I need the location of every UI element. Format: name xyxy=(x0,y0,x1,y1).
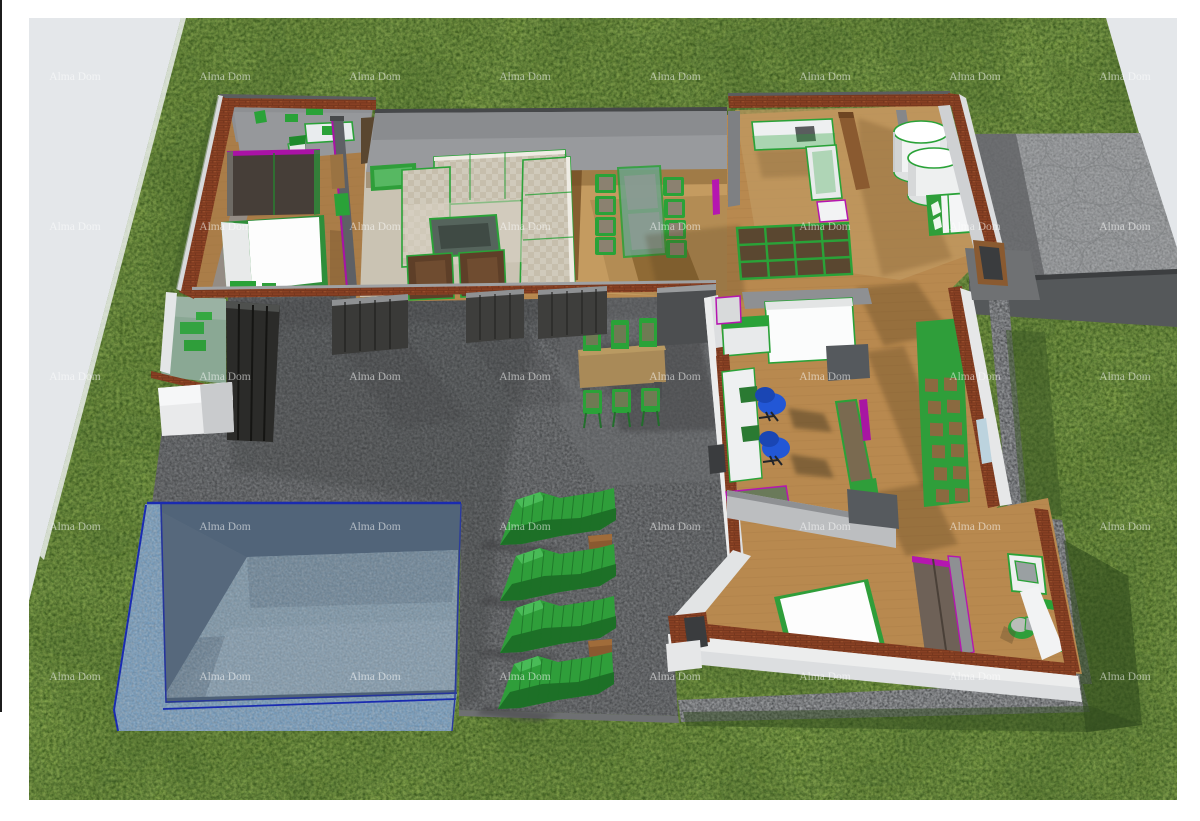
svg-text:Alma Dom: Alma Dom xyxy=(499,71,550,83)
svg-text:Alma Dom: Alma Dom xyxy=(949,221,1000,233)
svg-text:Alma Dom: Alma Dom xyxy=(349,371,400,383)
svg-text:Alma Dom: Alma Dom xyxy=(1099,371,1150,383)
svg-text:Alma Dom: Alma Dom xyxy=(199,71,250,83)
svg-text:Alma Dom: Alma Dom xyxy=(349,71,400,83)
svg-text:Alma Dom: Alma Dom xyxy=(799,371,850,383)
svg-text:Alma Dom: Alma Dom xyxy=(349,521,400,533)
svg-text:Alma Dom: Alma Dom xyxy=(199,221,250,233)
svg-text:Alma Dom: Alma Dom xyxy=(349,671,400,683)
svg-text:Alma Dom: Alma Dom xyxy=(649,71,700,83)
svg-text:Alma Dom: Alma Dom xyxy=(49,221,100,233)
svg-text:Alma Dom: Alma Dom xyxy=(1099,71,1150,83)
svg-text:Alma Dom: Alma Dom xyxy=(499,521,550,533)
svg-text:Alma Dom: Alma Dom xyxy=(1099,671,1150,683)
svg-text:Alma Dom: Alma Dom xyxy=(949,371,1000,383)
svg-text:Alma Dom: Alma Dom xyxy=(649,371,700,383)
svg-text:Alma Dom: Alma Dom xyxy=(799,221,850,233)
svg-text:Alma Dom: Alma Dom xyxy=(199,521,250,533)
svg-text:Alma Dom: Alma Dom xyxy=(799,521,850,533)
svg-text:Alma Dom: Alma Dom xyxy=(799,671,850,683)
svg-text:Alma Dom: Alma Dom xyxy=(199,371,250,383)
svg-text:Alma Dom: Alma Dom xyxy=(49,71,100,83)
svg-text:Alma Dom: Alma Dom xyxy=(499,371,550,383)
svg-text:Alma Dom: Alma Dom xyxy=(649,221,700,233)
svg-text:Alma Dom: Alma Dom xyxy=(199,671,250,683)
svg-text:Alma Dom: Alma Dom xyxy=(949,71,1000,83)
svg-text:Alma Dom: Alma Dom xyxy=(349,221,400,233)
svg-text:Alma Dom: Alma Dom xyxy=(1099,521,1150,533)
svg-text:Alma Dom: Alma Dom xyxy=(499,221,550,233)
svg-text:Alma Dom: Alma Dom xyxy=(49,371,100,383)
svg-text:Alma Dom: Alma Dom xyxy=(649,521,700,533)
svg-text:Alma Dom: Alma Dom xyxy=(949,521,1000,533)
svg-text:Alma Dom: Alma Dom xyxy=(49,671,100,683)
svg-text:Alma Dom: Alma Dom xyxy=(649,671,700,683)
svg-text:Alma Dom: Alma Dom xyxy=(949,671,1000,683)
svg-text:Alma Dom: Alma Dom xyxy=(1099,221,1150,233)
svg-text:Alma Dom: Alma Dom xyxy=(799,71,850,83)
svg-text:Alma Dom: Alma Dom xyxy=(49,521,100,533)
svg-text:Alma Dom: Alma Dom xyxy=(499,671,550,683)
